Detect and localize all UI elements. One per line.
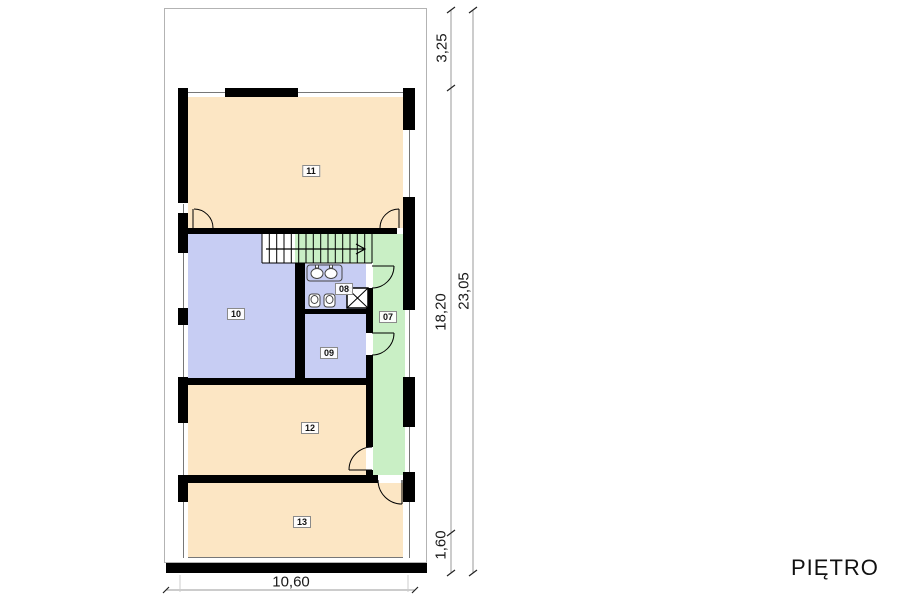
interior-wall [366,288,373,333]
exterior-wall [403,197,415,310]
interior-wall [178,475,378,483]
base-wall-bar [166,563,427,573]
dim-label-23-05: 23,05 [456,272,473,310]
window-icon [188,92,225,93]
plan-drawing-overlay [0,0,900,600]
interior-wall [188,228,397,234]
dim-label-3-25: 3,25 [434,33,451,62]
exterior-wall [225,88,298,97]
stair-landing-area [295,234,373,263]
window-icon [188,557,403,558]
interior-wall [305,309,373,314]
window-icon [409,502,410,558]
exterior-wall [178,308,188,325]
window-icon [409,310,410,377]
window-icon [183,325,184,377]
room-07-corridor-area [373,234,405,475]
room-09-area [305,314,366,378]
dim-label-1-60: 1,60 [433,530,450,559]
window-icon [183,253,184,308]
window-icon [409,130,410,197]
window-icon [183,204,184,213]
exterior-wall [403,88,415,130]
interior-wall [295,263,305,385]
window-icon [409,427,410,472]
room-label-10: 10 [227,308,245,320]
exterior-wall [403,472,415,502]
dim-label-18-20: 18,20 [433,293,450,331]
room-label-07: 07 [379,311,397,323]
floor-caption: PIĘTRO [791,555,879,581]
window-icon [298,92,403,93]
room-11-area [188,97,403,228]
exterior-wall [178,377,188,423]
exterior-wall [403,377,415,427]
room-label-12: 12 [301,422,319,434]
room-label-13: 13 [293,516,311,528]
room-label-11: 11 [302,165,320,177]
room-12-area [188,385,366,475]
room-label-08: 08 [335,283,353,295]
room-label-09: 09 [320,347,338,359]
interior-wall [188,378,373,385]
window-icon [183,502,184,558]
dim-label-10-60: 10,60 [272,574,310,591]
floor-plan-canvas: 07 08 09 10 11 12 13 3,25 18,20 1,60 23,… [0,0,900,600]
window-icon [183,423,184,475]
interior-wall [366,385,373,447]
exterior-wall [178,213,188,253]
exterior-wall [178,88,188,203]
